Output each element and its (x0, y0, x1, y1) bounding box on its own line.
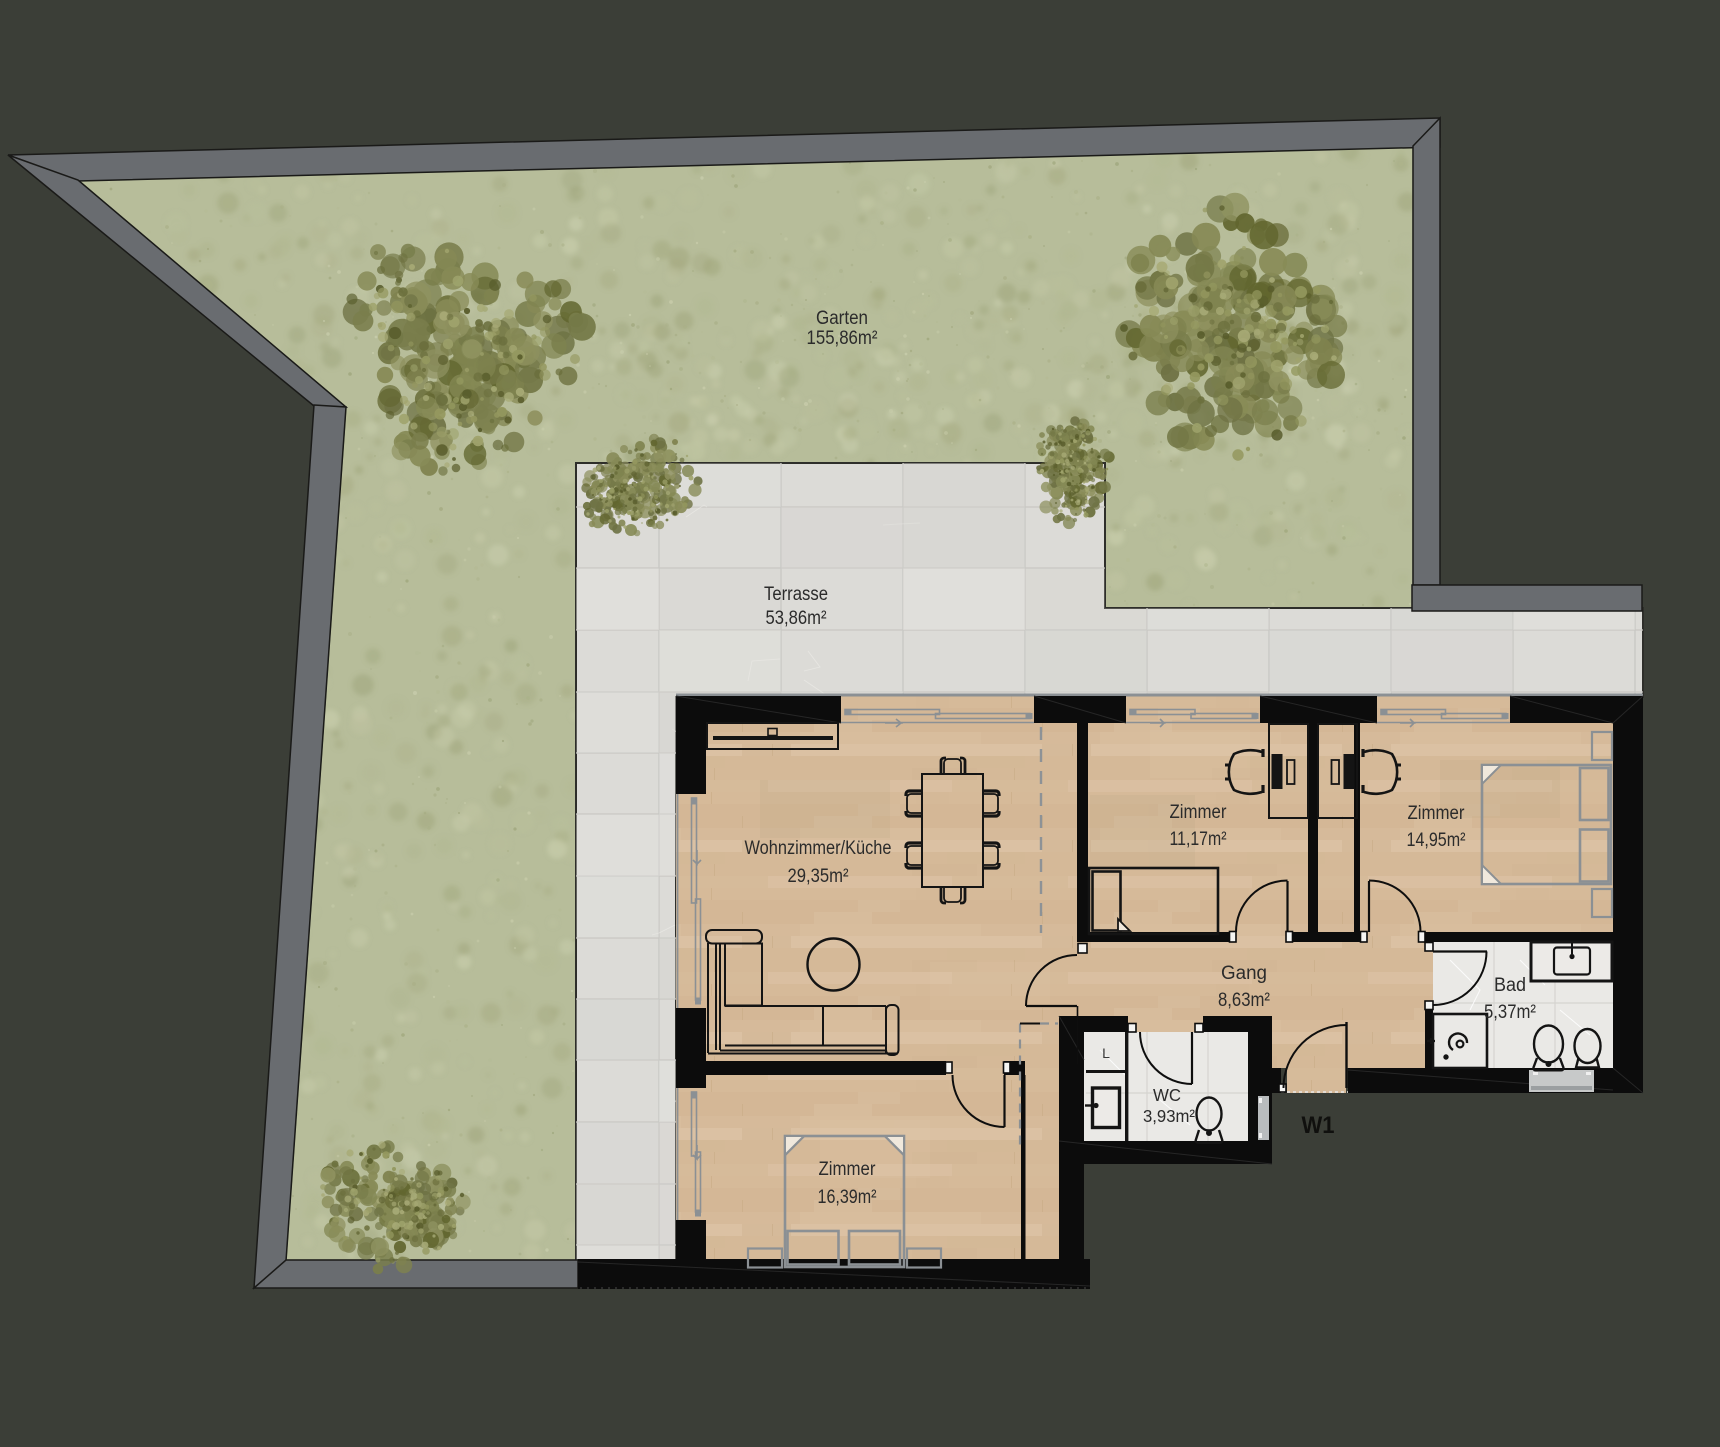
svg-text:5,37m²: 5,37m² (1484, 1002, 1536, 1023)
svg-text:Zimmer: Zimmer (1170, 802, 1228, 823)
svg-text:11,17m²: 11,17m² (1170, 829, 1227, 850)
svg-text:Wohnzimmer/Küche: Wohnzimmer/Küche (745, 838, 892, 859)
svg-text:Garten: Garten (816, 308, 868, 329)
svg-text:53,86m²: 53,86m² (766, 608, 827, 629)
svg-text:W1: W1 (1302, 1112, 1335, 1139)
svg-text:Terrasse: Terrasse (764, 584, 828, 605)
svg-text:155,86m²: 155,86m² (807, 328, 878, 349)
svg-text:16,39m²: 16,39m² (818, 1187, 877, 1208)
svg-text:Zimmer: Zimmer (1408, 803, 1466, 824)
svg-text:Zimmer: Zimmer (819, 1159, 877, 1180)
svg-text:8,63m²: 8,63m² (1218, 990, 1270, 1011)
svg-text:14,95m²: 14,95m² (1407, 830, 1466, 851)
svg-text:Gang: Gang (1221, 963, 1267, 984)
svg-text:3,93m²: 3,93m² (1143, 1106, 1195, 1126)
svg-text:L: L (1102, 1045, 1110, 1061)
svg-text:29,35m²: 29,35m² (788, 866, 849, 887)
svg-text:Bad: Bad (1494, 975, 1526, 996)
svg-text:WC: WC (1153, 1085, 1181, 1105)
